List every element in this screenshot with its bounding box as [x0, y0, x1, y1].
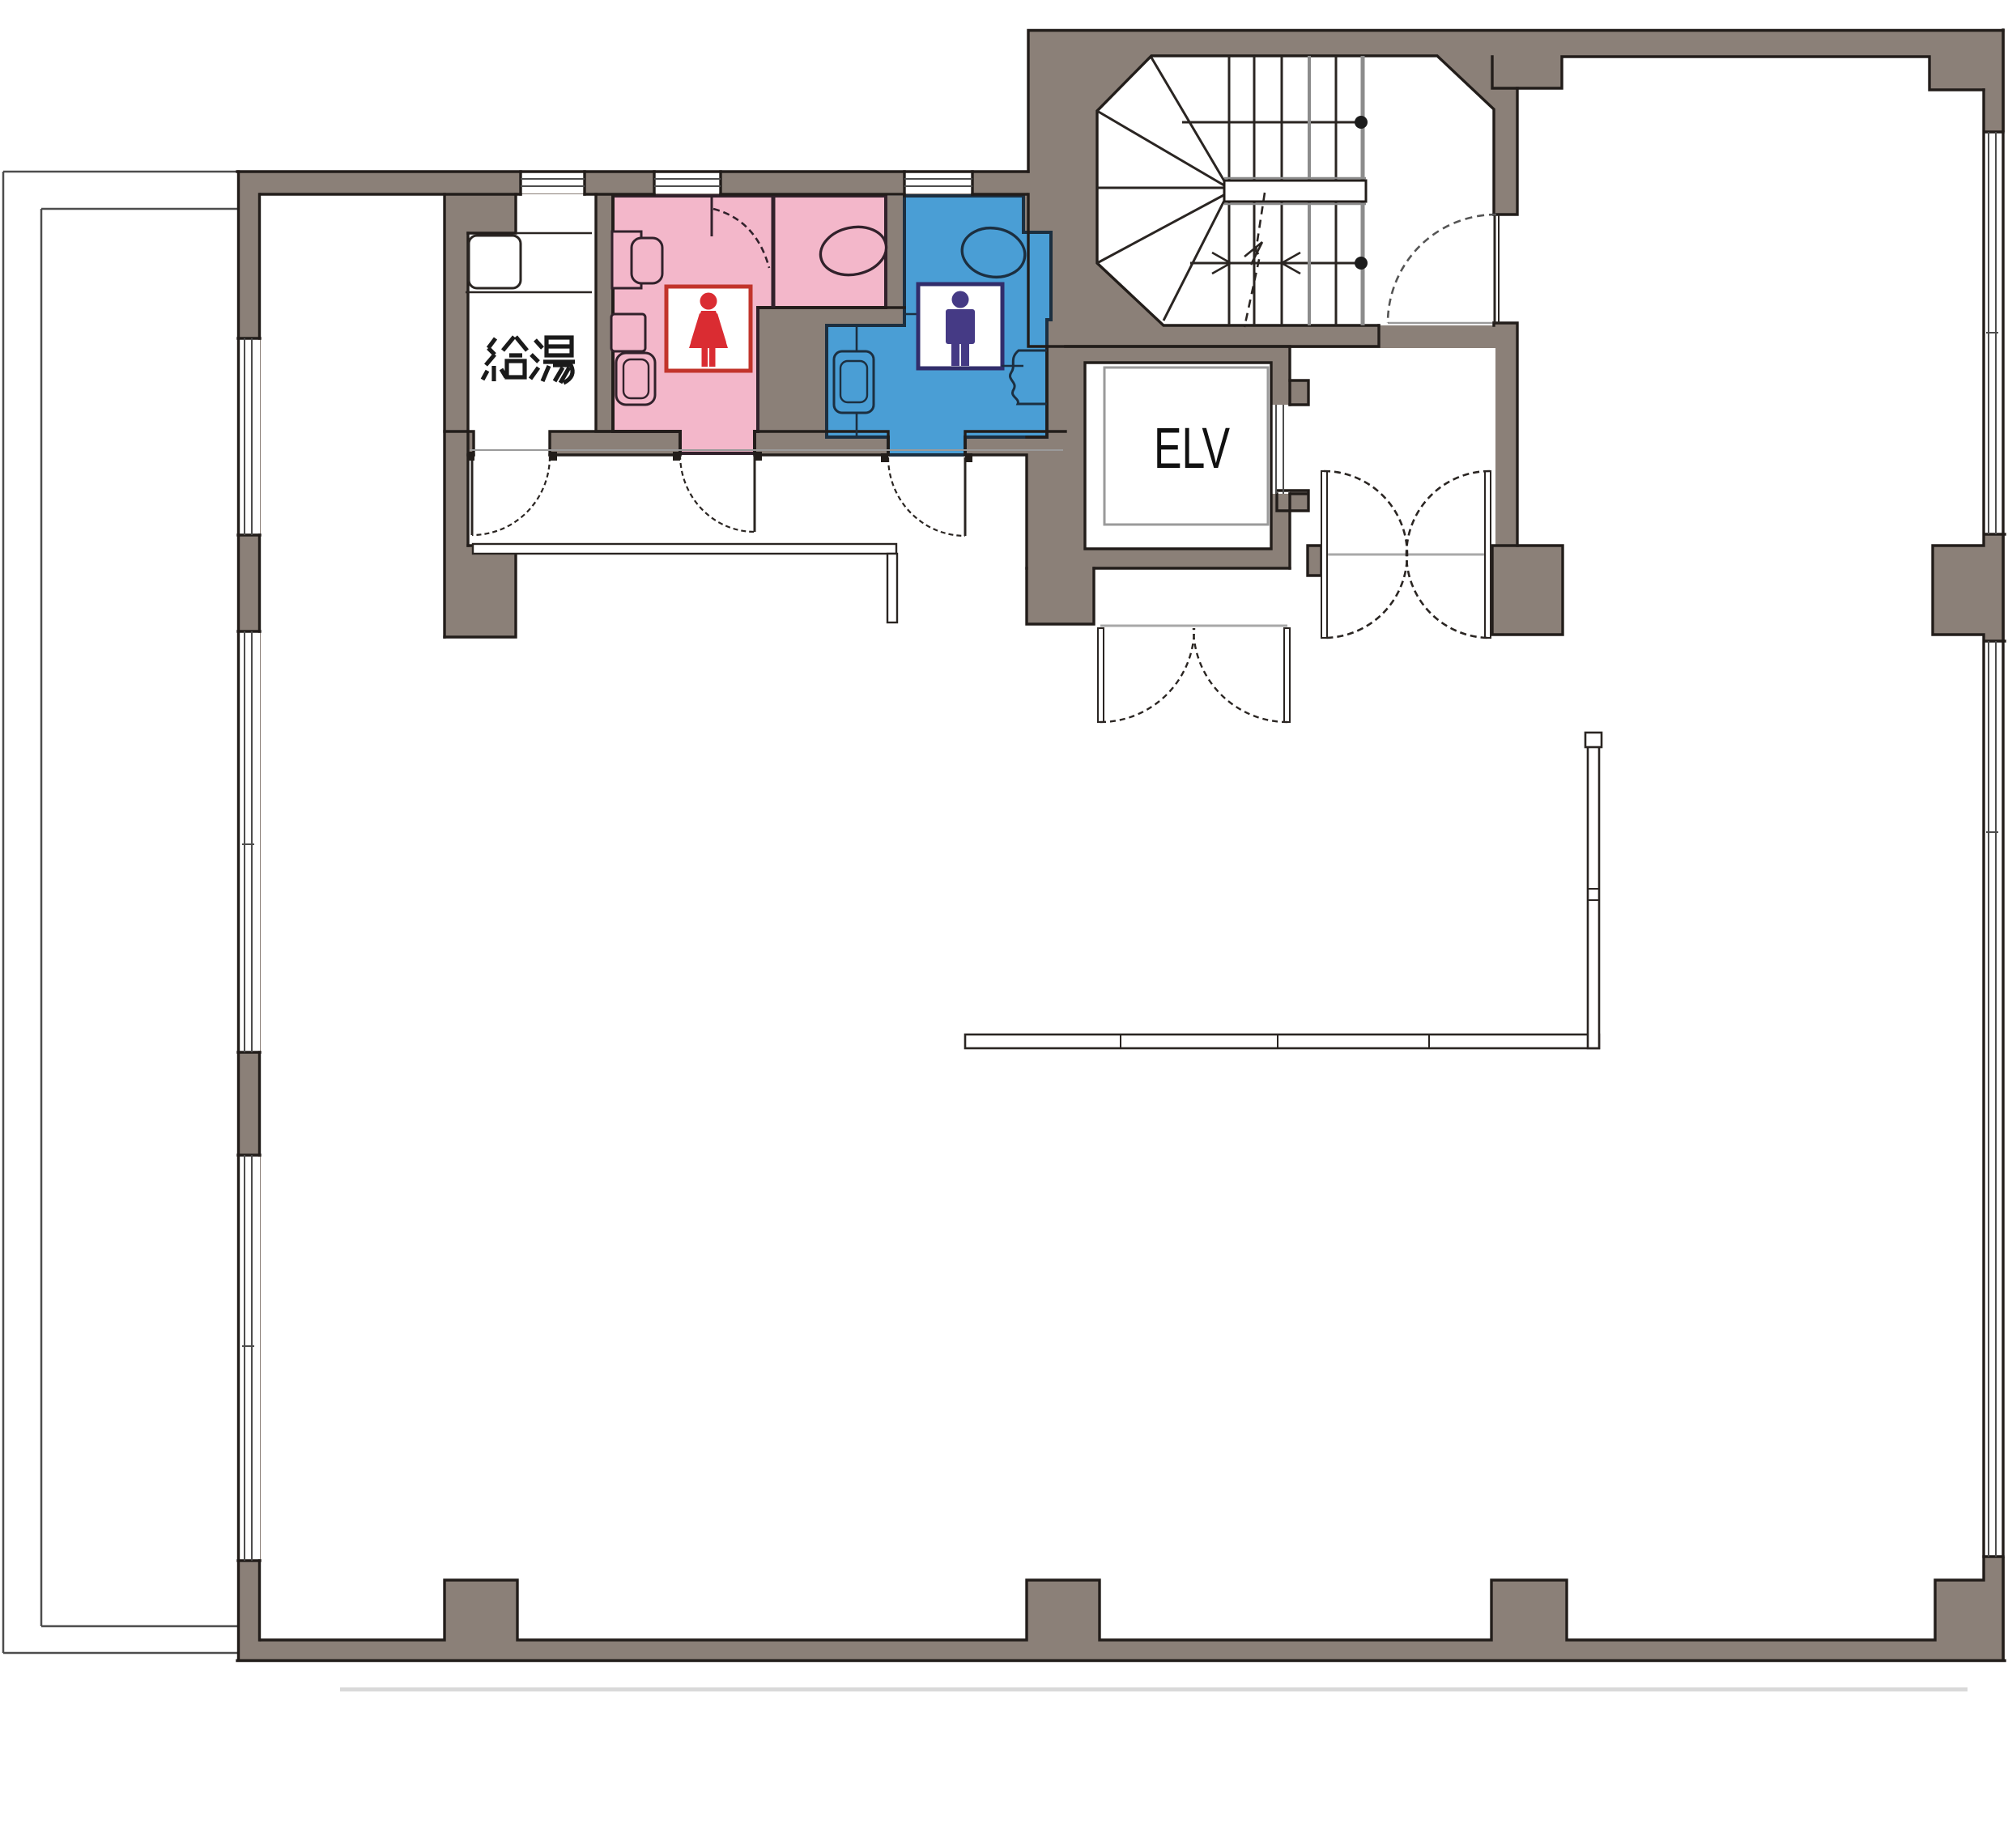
svg-text:ELV: ELV: [1154, 417, 1230, 481]
